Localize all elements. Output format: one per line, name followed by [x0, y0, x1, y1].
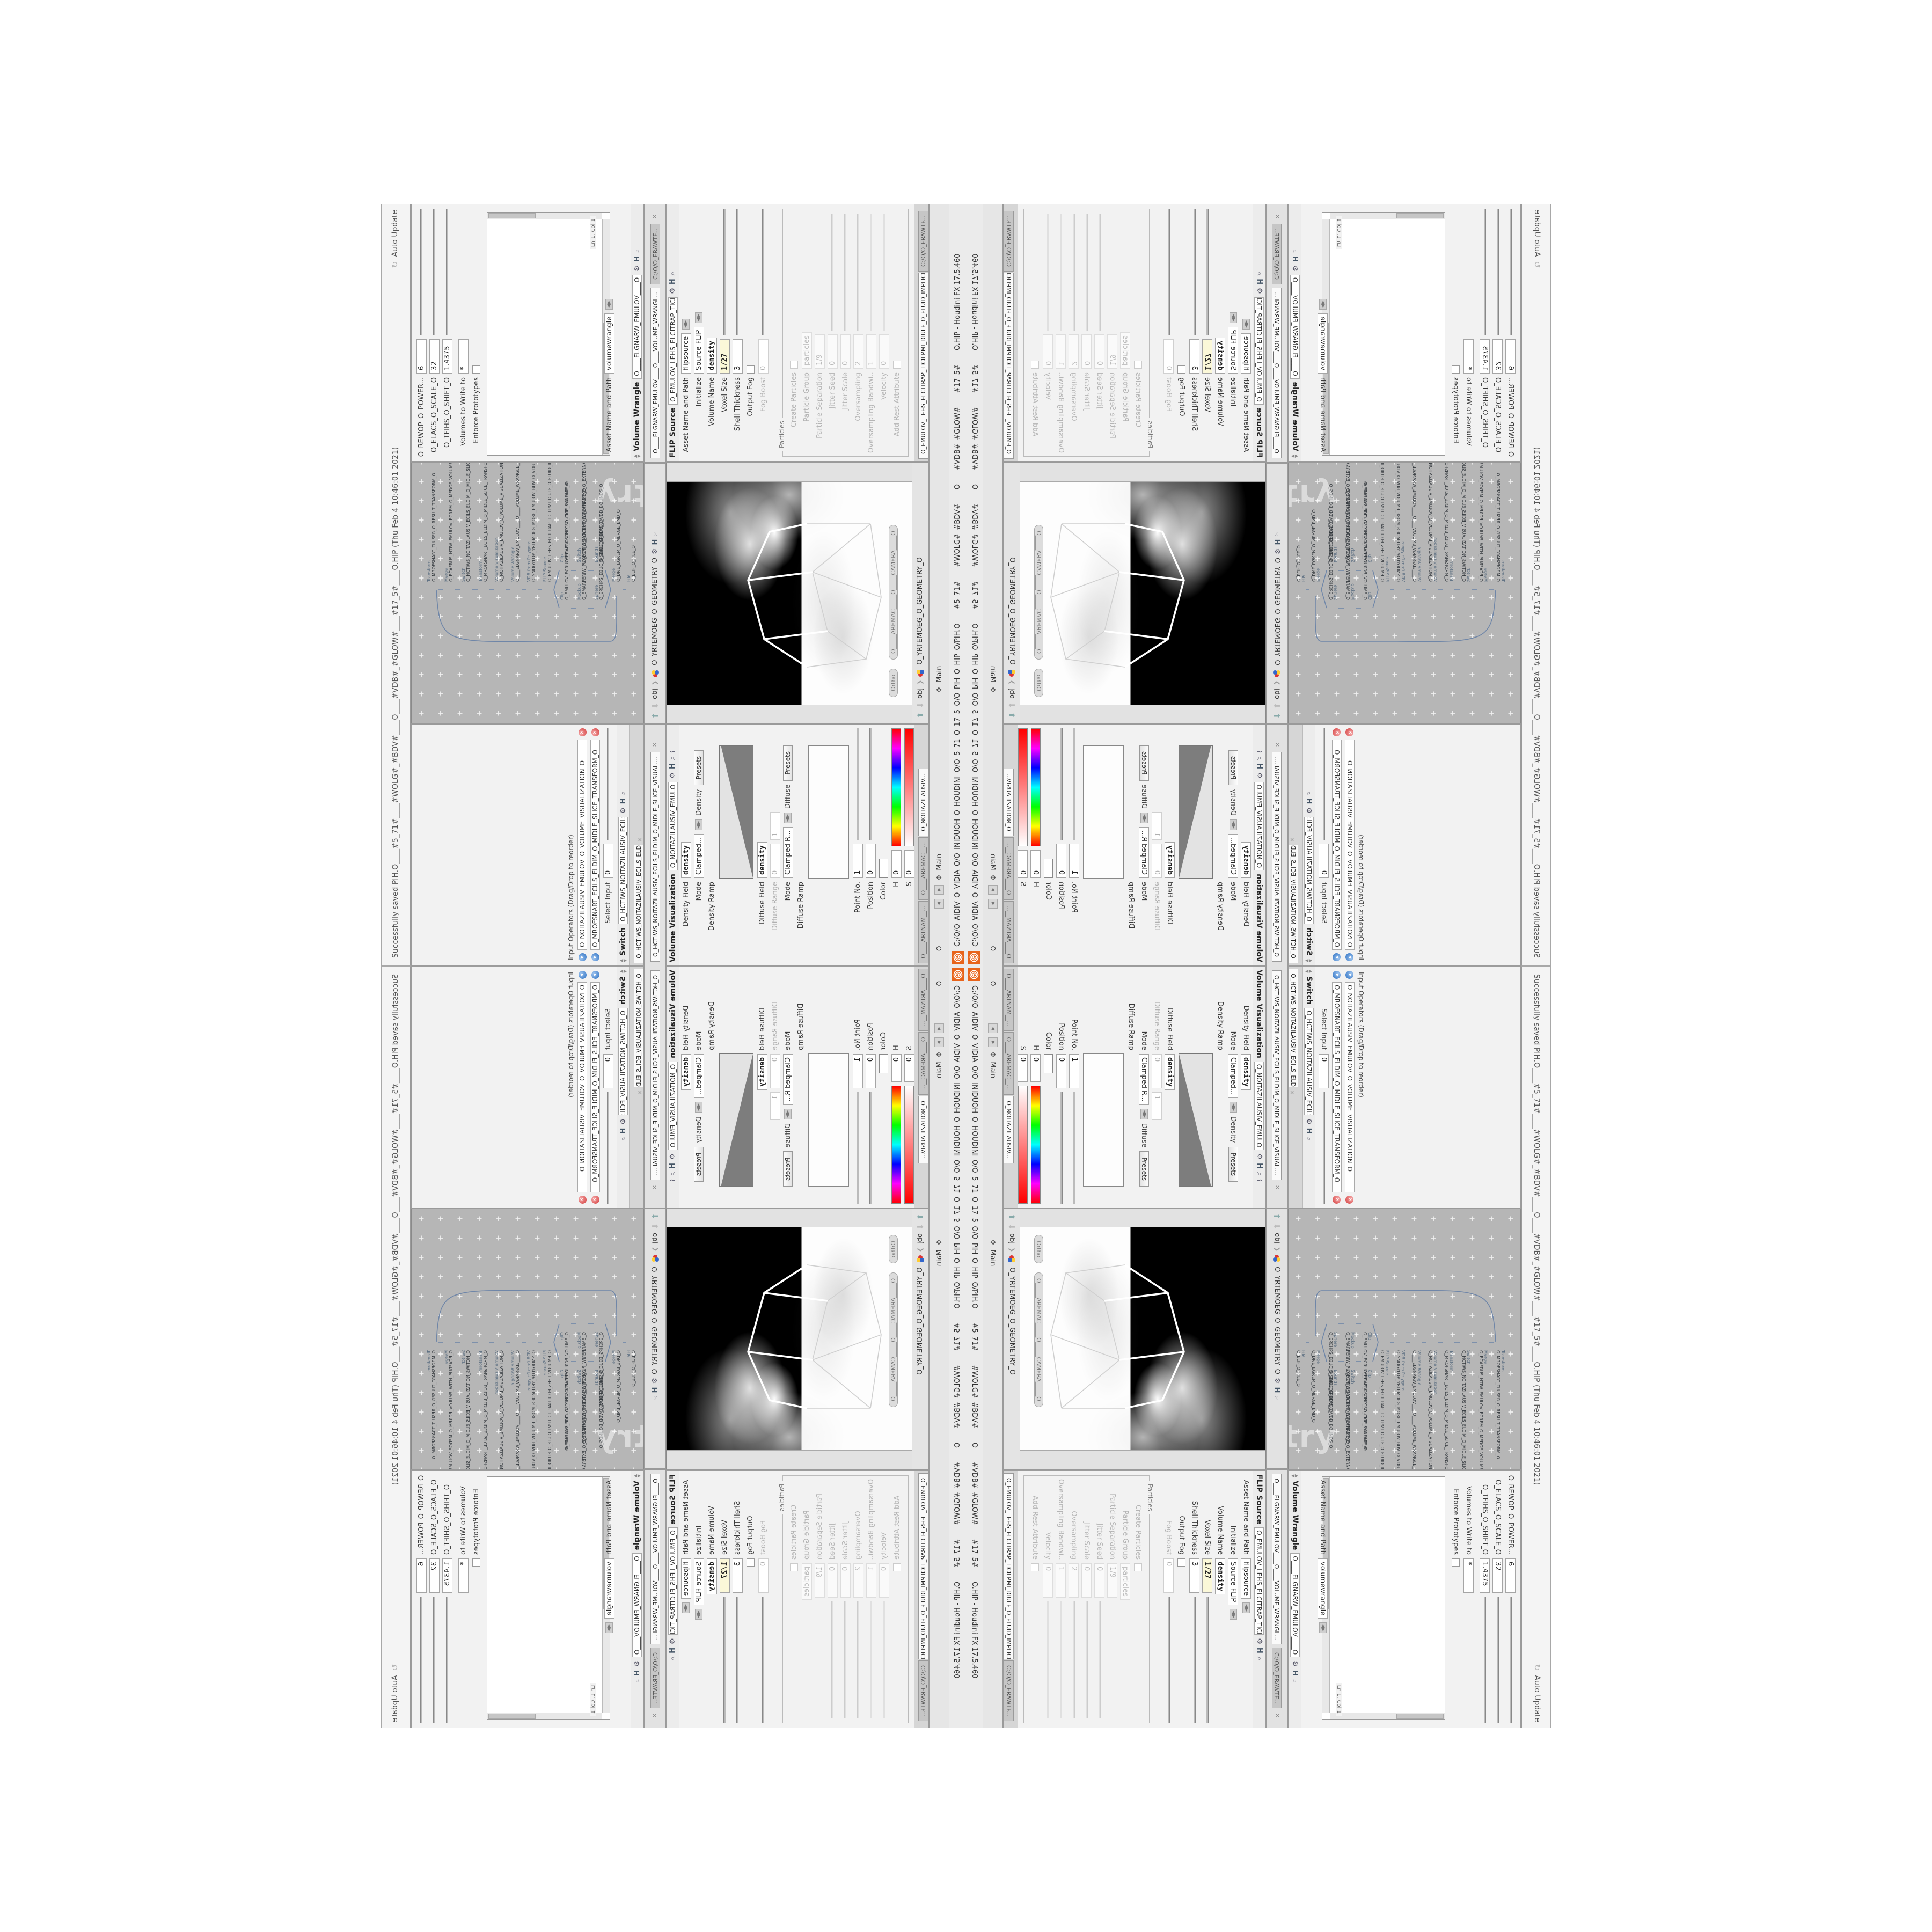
auto-update-dropdown[interactable]: Auto Update [1533, 1675, 1541, 1722]
delete-input-icon[interactable]: ✕ [591, 728, 599, 736]
parameter-slider[interactable] [831, 1601, 833, 1718]
parameter-row[interactable]: Shell Thickness 3 ◀▶ [731, 204, 744, 461]
parameter-row[interactable]: Select Input 0 [1318, 967, 1330, 1208]
search-icon[interactable]: ⌕ [1273, 532, 1281, 536]
parameter-row[interactable]: Diffuse Ramp ◀▶ [1125, 967, 1138, 1208]
parameter-slider[interactable] [1168, 209, 1170, 335]
parameter-slider[interactable] [420, 209, 422, 335]
parameter-row[interactable]: Velocity 0 [1042, 209, 1055, 456]
nav-down-icon[interactable]: ⬇ [650, 1223, 660, 1230]
pane-tab[interactable]: C:/O/O_ERAWTF... [918, 211, 928, 272]
parameter-slider[interactable] [1047, 214, 1049, 331]
parameter-slider[interactable] [869, 1092, 872, 1204]
pane-tab-main[interactable]: Main [989, 854, 997, 870]
desktop-name[interactable]: O [935, 981, 943, 986]
tab-scroll-right-icon[interactable]: ▶ [934, 1037, 944, 1047]
parameter-slider[interactable] [433, 1597, 435, 1723]
pane-tab[interactable]: O____AREMAC__... [918, 1032, 928, 1095]
parameter-row[interactable]: Jitter Scale 0 [1080, 209, 1093, 456]
parameter-row[interactable]: Diffuse Field density ◀▶ [1163, 967, 1176, 1208]
parameter-row[interactable]: Diffuse Field density ◀▶ [756, 967, 769, 1208]
parameter-slider[interactable] [433, 209, 435, 335]
parameter-row[interactable]: O_TFIHS_O_SHIFT_O 1.4375 [1479, 204, 1491, 461]
search-icon[interactable]: ⌕ [1255, 1172, 1263, 1176]
help-icon[interactable]: H [669, 763, 677, 769]
input-operator-row[interactable]: ➤ O_NOITAZILAUSIV_EMULOV_O_VOLUME_VISUAL… [1343, 967, 1356, 1208]
parameter-row[interactable]: Jitter Scale 0 [1080, 1476, 1093, 1723]
parameter-row[interactable]: Diffuse Range 0 1 ◀▶ [1151, 724, 1163, 965]
parameter-row[interactable]: Volume Name density ◀▶ [705, 1471, 718, 1728]
input-operator-row[interactable]: ➤ O_NOITAZILAUSIV_EMULOV_O_VOLUME_VISUAL… [1343, 724, 1356, 965]
diffuse-ramp-widget[interactable] [1083, 1053, 1124, 1204]
parameter-slider[interactable] [1510, 209, 1512, 335]
parameter-slider[interactable] [762, 209, 764, 335]
gear-icon[interactable]: ⚙ [619, 807, 627, 814]
help-icon[interactable]: H [1291, 1670, 1299, 1676]
parameter-row[interactable]: Mode Clamped... ◀▶ Density Presets [692, 967, 705, 1208]
parameter-row[interactable]: Initialize Source FLIP ◀▶ [692, 204, 705, 461]
nav-down-icon[interactable]: ⬇ [1272, 702, 1282, 709]
gear-icon[interactable]: ⚙ [1255, 772, 1263, 779]
combo-arrows-icon[interactable]: ◀▶ [1230, 312, 1237, 323]
combo-arrows-icon[interactable]: ◀▶ [605, 299, 613, 310]
search-icon[interactable]: ⌕ [1255, 1657, 1263, 1660]
nav-up-icon[interactable]: ⬆ [1007, 712, 1017, 719]
parameter-row[interactable]: Shell Thickness 3 ◀▶ [1188, 204, 1201, 461]
parameter-row[interactable]: Mode Clamped... ◀▶ Density Presets [1227, 724, 1240, 965]
combo-arrows-icon[interactable]: ◀▶ [1230, 1609, 1237, 1620]
hsv-row[interactable]: H 0 ◀▶ [890, 967, 903, 1208]
help-icon[interactable]: H [1273, 1387, 1281, 1393]
search-icon[interactable]: ⌕ [619, 1137, 627, 1140]
hsv-gradient-bar[interactable] [1031, 728, 1041, 846]
parameter-slider[interactable] [1073, 1601, 1075, 1718]
parameter-row[interactable]: Voxel Size 1/27 ◀▶ [718, 204, 731, 461]
parameter-slider[interactable] [1086, 214, 1088, 331]
parameter-row[interactable]: Jitter Seed 0 [1093, 1476, 1106, 1723]
info-icon[interactable]: ℹ [1256, 750, 1263, 753]
presets-button[interactable]: Presets [694, 1147, 704, 1182]
parameter-slider[interactable] [1206, 209, 1209, 335]
pane-tab[interactable]: O_NOITAZILAUSIV... [918, 769, 928, 836]
parameter-row[interactable]: Diffuse Ramp ◀▶ [1125, 724, 1138, 965]
color-swatch[interactable] [879, 1054, 888, 1073]
desktop-name[interactable]: O [935, 946, 943, 951]
nav-up-icon[interactable]: ⬆ [916, 1213, 925, 1220]
close-tab-icon[interactable]: ✕ [638, 1088, 643, 1096]
parameter-slider[interactable] [844, 1601, 846, 1718]
pane-node-name-field[interactable]: O____ELGNARW_EMULOV____O [1290, 1553, 1300, 1657]
pane-divider[interactable] [1004, 462, 1521, 463]
parameter-row[interactable]: Point No. 1 [851, 967, 864, 1208]
hsv-row[interactable]: H 0 ◀▶ [1029, 724, 1042, 965]
parameter-row[interactable]: Velocity 0 [877, 209, 890, 456]
breadcrumb-path[interactable]: O_YRTEMOEG_O_GEOMETRY_O [916, 1267, 924, 1375]
hsv-gradient-bar[interactable] [904, 1086, 914, 1204]
parameter-row[interactable]: Oversampling Bandwi... 1 [1055, 1476, 1067, 1723]
parameter-row[interactable]: Mode Clamped R... ◀▶ Diffuse Presets [781, 724, 794, 965]
parameter-row[interactable]: Fog Boost 0 ◀▶ [1162, 1471, 1175, 1728]
nav-down-icon[interactable]: ⬇ [1272, 1223, 1282, 1230]
input-operator-row[interactable]: ➤ O_MROFSNART_ECILS_ELDIM_O_MIDLE_SLICE_… [589, 724, 602, 965]
pane-divider[interactable] [1004, 1207, 1521, 1209]
pane-tab[interactable]: O_EMULOV_LEHS_ELCITRAP_TICILPMI_DIULF_O_… [1004, 273, 1014, 459]
parameter-slider[interactable] [446, 209, 448, 335]
breadcrumb-context[interactable]: obj [651, 1233, 659, 1243]
pane-nav-arrows[interactable]: ▲▼ [1305, 959, 1313, 962]
pane-tab[interactable]: C:/O/O_ERAWTF... [1004, 211, 1014, 272]
parameter-row[interactable]: Jitter Seed 0 [826, 1476, 839, 1723]
hsv-row[interactable]: S 0 ◀▶ [1016, 724, 1029, 965]
pane-tab[interactable]: C:/O/O_ERAWTF... [1004, 1660, 1014, 1721]
scene-viewport[interactable]: Ortho O_____AREMAC_____O_____CAMERA_____… [666, 1209, 928, 1469]
presets-button[interactable]: Presets [694, 750, 704, 786]
breadcrumb-context[interactable]: obj [1273, 689, 1281, 699]
pane-tab[interactable]: O____ELGNARW_EMULOV____O____VOLUME_WRANG… [1272, 1474, 1282, 1644]
pane-tab-main[interactable]: Main [935, 854, 943, 870]
pane-tab[interactable]: O____AREMAC__... [1004, 837, 1014, 900]
parameter-row[interactable]: Oversampling 2 [852, 1476, 865, 1723]
network-editor[interactable]: Transform O_MROFSNART_TLUSER_O_RESULT_TR… [1288, 463, 1521, 723]
input-operator-row[interactable]: ➤ O_MROFSNART_ECILS_ELDIM_O_MIDLE_SLICE_… [1330, 967, 1343, 1208]
close-tab-icon[interactable]: ✕ [652, 741, 658, 749]
asset-name-row[interactable]: Asset Name and Path volumewrangle ◀▶ [603, 204, 616, 461]
pane-node-name-field[interactable]: O_EMULOV_LEHS_ELCITRAP_TICI [1255, 297, 1264, 405]
parameter-row[interactable]: Output Fog ◀▶ [1175, 1471, 1188, 1728]
parameter-row[interactable]: Oversampling Bandwi... 1 [1055, 209, 1067, 456]
parameter-slider[interactable] [607, 728, 609, 840]
pane-divider[interactable] [1004, 723, 1521, 724]
auto-update-dropdown[interactable]: Auto Update [391, 210, 399, 257]
parameter-row[interactable]: Add Rest Attribute [1029, 209, 1042, 456]
checkbox[interactable] [1178, 1558, 1186, 1567]
help-icon[interactable]: H [651, 1387, 659, 1393]
checkbox[interactable] [472, 1558, 480, 1567]
pane-node-name-field[interactable]: O_NOITAZILAUSIV_EMULO [1255, 782, 1264, 871]
refresh-icon[interactable]: ↻ [1532, 1664, 1542, 1671]
parameter-row[interactable]: Oversampling Bandwi... 1 [865, 209, 877, 456]
pane-nav-arrows[interactable]: ▲▼ [619, 970, 627, 973]
pane-nav-arrows[interactable]: ▲▼ [1291, 1474, 1299, 1477]
volume-render-image[interactable]: Ortho O_____AREMAC_____O_____CAMERA_____… [1020, 1227, 1265, 1451]
parameter-row[interactable]: Create Particles [1132, 209, 1145, 456]
help-icon[interactable]: H [1255, 1648, 1263, 1653]
delete-input-icon[interactable]: ✕ [579, 1196, 587, 1204]
reorder-arrow-icon[interactable]: ➤ [579, 953, 587, 961]
asset-name-row[interactable]: Asset Name and Path volumewrangle ◀▶ [1316, 1471, 1329, 1728]
hsv-row[interactable]: H 0 ◀▶ [1029, 967, 1042, 1208]
hsv-gradient-bar[interactable] [891, 728, 901, 846]
parameter-row[interactable]: Density Field density ◀▶ [1240, 967, 1253, 1208]
combo-arrows-icon[interactable]: ◀▶ [784, 1109, 792, 1119]
help-icon[interactable]: H [1255, 1163, 1263, 1169]
breadcrumb-path[interactable]: O_YRTEMOEG_O_GEOMETRY_O [1273, 558, 1281, 665]
parameter-row[interactable]: Color [877, 967, 890, 1208]
pane-nav-arrows[interactable]: ▲▼ [633, 455, 641, 458]
tab-scroll-left-icon[interactable]: ◀ [934, 899, 944, 909]
tab-scroll-left-icon[interactable]: ◀ [934, 1023, 944, 1033]
parameter-slider[interactable] [1484, 1597, 1486, 1723]
parameter-row[interactable]: Create Particles [787, 1476, 800, 1723]
combo-arrows-icon[interactable]: ◀▶ [695, 1609, 702, 1620]
parameter-row[interactable]: Mode Clamped... ◀▶ Density Presets [692, 724, 705, 965]
close-tab-icon[interactable]: ✕ [1274, 213, 1280, 220]
combo-arrows-icon[interactable]: ◀▶ [682, 319, 690, 330]
breadcrumb-context[interactable]: obj [1008, 1233, 1016, 1244]
pane-tab[interactable]: O_NOITAZILAUSIV... [1004, 1096, 1014, 1163]
search-icon[interactable]: ⌕ [1305, 791, 1313, 795]
pane-nav-arrows[interactable]: ▲▼ [1291, 455, 1299, 458]
parameter-row[interactable]: Particle Separation 1/9 [813, 1476, 826, 1723]
pane-tab[interactable]: C:/O/O_ERAWTF... [1272, 224, 1282, 284]
input-operator-row[interactable]: ➤ O_NOITAZILAUSIV_EMULOV_O_VOLUME_VISUAL… [576, 724, 589, 965]
projection-pill[interactable]: Ortho [889, 1235, 898, 1263]
projection-pill[interactable]: Ortho [1034, 1235, 1043, 1263]
pane-divider[interactable] [1004, 1469, 1521, 1470]
parameter-slider[interactable] [723, 209, 726, 335]
parameter-row[interactable]: O_ELACS_O_SCALE_O 32 [428, 204, 441, 461]
pane-tab[interactable]: C:/O/O_ERAWTF... [918, 1660, 928, 1721]
parameter-slider[interactable] [1086, 1601, 1088, 1718]
parameter-row[interactable]: Color [1042, 967, 1055, 1208]
parameter-row[interactable]: Volumes to Write to * [457, 1471, 470, 1728]
gear-icon[interactable]: ⚙ [619, 1118, 627, 1125]
search-icon[interactable]: ⌕ [651, 1396, 659, 1400]
close-tab-icon[interactable]: ✕ [638, 836, 643, 843]
parameter-row[interactable]: O_REWOP_O_POWER... 6 [415, 204, 428, 461]
parameter-row[interactable]: Density Ramp ◀▶ [1214, 724, 1227, 965]
diffuse-ramp-widget[interactable] [808, 728, 849, 879]
combo-arrows-icon[interactable]: ◀▶ [695, 819, 702, 830]
nav-up-icon[interactable]: ⬆ [1007, 1213, 1017, 1220]
delete-input-icon[interactable]: ✕ [1333, 728, 1341, 736]
pane-tab[interactable]: O_EMULOV_LEHS_ELCITRAP_TICILPMI_DIULF_O_… [918, 273, 928, 459]
parameter-slider[interactable] [857, 728, 859, 840]
help-icon[interactable]: H [1273, 539, 1281, 545]
nav-up-icon[interactable]: ⬆ [1272, 712, 1282, 719]
pane-tab[interactable]: O_NOITAZILAUSIV... [918, 1096, 928, 1163]
parameter-slider[interactable] [1047, 1601, 1049, 1718]
pane-tab[interactable]: O_HCTIWS_NOITAZILAUSIV_ECILS_ELDIM_O_MID… [634, 969, 643, 1087]
code-vertical-scrollbar[interactable] [1330, 213, 1445, 219]
checkbox[interactable] [1135, 1563, 1143, 1571]
breadcrumb-path[interactable]: O_YRTEMOEG_O_GEOMETRY_O [1008, 1267, 1016, 1375]
parameter-row[interactable]: Density Field density ◀▶ [679, 724, 692, 965]
parameter-row[interactable]: Particle Separation 1/9 [813, 209, 826, 456]
parameter-slider[interactable] [762, 1597, 764, 1723]
reorder-arrow-icon[interactable]: ➤ [1346, 971, 1354, 979]
parameter-slider[interactable] [1073, 214, 1075, 331]
parameter-row[interactable]: Jitter Scale 0 [839, 209, 852, 456]
pane-node-name-field[interactable]: O_HCTIWS_NOITAZILAUSIV_ECILS_EL [1304, 1008, 1314, 1115]
parameter-row[interactable]: Volume Name density ◀▶ [705, 204, 718, 461]
presets-button[interactable]: Presets [1139, 745, 1149, 781]
info-icon[interactable]: ℹ [669, 1179, 677, 1182]
search-icon[interactable]: ⌕ [1305, 1137, 1313, 1140]
parameter-row[interactable]: Point No. 1 [1068, 724, 1081, 965]
parameter-row[interactable]: Initialize Source FLIP ◀▶ [692, 1471, 705, 1728]
info-icon[interactable]: ℹ [1256, 1179, 1263, 1182]
density-ramp-widget[interactable] [1179, 728, 1213, 879]
gear-icon[interactable]: ⚙ [1255, 288, 1263, 294]
pane-tab-main[interactable]: Main [989, 1249, 997, 1266]
scene-viewport[interactable]: Ortho O_____AREMAC_____O_____CAMERA_____… [666, 463, 928, 723]
parameter-row[interactable]: Diffuse Range 0 1 ◀▶ [769, 967, 781, 1208]
close-tab-icon[interactable]: ✕ [1274, 741, 1280, 749]
asset-name-row[interactable]: Asset Name and Path flipsource ◀▶ [679, 1471, 692, 1728]
parameter-row[interactable]: Shell Thickness 3 ◀▶ [1188, 1471, 1201, 1728]
combo-arrows-icon[interactable]: ◀▶ [1319, 1622, 1327, 1633]
parameter-row[interactable]: Jitter Seed 0 [1093, 209, 1106, 456]
parameter-row[interactable]: O_TFIHS_O_SHIFT_O 1.4375 [1479, 1471, 1491, 1728]
parameter-row[interactable]: Density Field density ◀▶ [679, 967, 692, 1208]
gear-icon[interactable]: ⚙ [669, 288, 677, 294]
camera-pill[interactable]: O_____AREMAC_____O_____CAMERA_____O [889, 525, 898, 660]
pane-tab[interactable]: O____ARTNAM__... [918, 969, 928, 1031]
parameter-row[interactable]: Initialize Source FLIP ◀▶ [1227, 1471, 1240, 1728]
parameter-slider[interactable] [857, 1092, 859, 1204]
tab-scroll-left-icon[interactable]: ◀ [988, 1023, 998, 1033]
checkbox[interactable] [1135, 361, 1143, 369]
parameter-row[interactable]: Diffuse Field density ◀▶ [756, 724, 769, 965]
reorder-arrow-icon[interactable]: ➤ [579, 971, 587, 979]
nav-down-icon[interactable]: ⬇ [1007, 702, 1017, 709]
pane-tab[interactable]: O____AREMAC__... [918, 837, 928, 900]
help-icon[interactable]: H [1255, 763, 1263, 769]
help-icon[interactable]: H [669, 1648, 677, 1653]
close-tab-icon[interactable]: ✕ [1289, 1088, 1294, 1096]
search-icon[interactable]: ⌕ [633, 1679, 641, 1683]
parameter-row[interactable]: Jitter Scale 0 [839, 1476, 852, 1723]
reorder-arrow-icon[interactable]: ➤ [1333, 953, 1341, 961]
pane-node-name-field[interactable]: O____ELGNARW_EMULOV____O [632, 1553, 642, 1657]
parameter-slider[interactable] [883, 214, 885, 331]
refresh-icon[interactable]: ↻ [390, 261, 400, 268]
breadcrumb-path[interactable]: O_YRTEMOEG_O_GEOMETRY_O [916, 557, 924, 665]
parameter-slider[interactable] [1060, 1092, 1063, 1204]
delete-input-icon[interactable]: ✕ [591, 1196, 599, 1204]
parameter-row[interactable]: Mode Clamped R... ◀▶ Diffuse Presets [1138, 967, 1151, 1208]
help-icon[interactable]: H [669, 279, 677, 284]
combo-arrows-icon[interactable]: ◀▶ [1230, 819, 1237, 830]
checkbox[interactable] [1031, 361, 1040, 369]
refresh-icon[interactable]: ↻ [1532, 261, 1542, 268]
diffuse-ramp-widget[interactable] [808, 1053, 849, 1204]
tab-scroll-right-icon[interactable]: ▶ [988, 1037, 998, 1047]
parameter-slider[interactable] [723, 1597, 726, 1723]
help-icon[interactable]: H [619, 1128, 627, 1134]
pane-tab[interactable]: C:/O/O_ERAWTF... [650, 1648, 660, 1708]
nav-up-icon[interactable]: ⬆ [1272, 1213, 1282, 1220]
help-icon[interactable]: H [619, 799, 627, 804]
checkbox[interactable] [790, 1563, 798, 1571]
auto-update-dropdown[interactable]: Auto Update [391, 1675, 399, 1722]
pane-tab[interactable]: O_HCTIWS_NOITAZILAUSIV_ECILS_ELDIM_O_MID… [1289, 969, 1298, 1087]
hsv-gradient-bar[interactable] [891, 1086, 901, 1204]
code-vertical-scrollbar[interactable] [487, 1713, 602, 1719]
checkbox[interactable] [747, 365, 755, 374]
pane-tab[interactable]: O____ARTNAM__... [1004, 969, 1014, 1031]
pane-node-name-field[interactable]: O_NOITAZILAUSIV_EMULO [668, 782, 678, 871]
camera-pill[interactable]: O_____AREMAC_____O_____CAMERA_____O [1034, 525, 1043, 660]
pane-node-name-field[interactable]: O____ELGNARW_EMULOV____O [632, 275, 642, 379]
asset-name-row[interactable]: Asset Name and Path flipsource ◀▶ [1240, 204, 1253, 461]
gear-icon[interactable]: ⚙ [669, 1153, 677, 1160]
search-icon[interactable]: ⌕ [1291, 1679, 1299, 1683]
presets-button[interactable]: Presets [1228, 750, 1238, 786]
parameter-row[interactable]: Point No. 1 [1068, 967, 1081, 1208]
parameter-slider[interactable] [844, 214, 846, 331]
parameter-row[interactable]: Density Ramp ◀▶ [705, 724, 718, 965]
breadcrumb-path[interactable]: O_YRTEMOEG_O_GEOMETRY_O [651, 1267, 659, 1374]
gear-icon[interactable]: ⚙ [1305, 1118, 1313, 1125]
parameter-slider[interactable] [1073, 728, 1075, 840]
hsv-gradient-bar[interactable] [1031, 1086, 1041, 1204]
pane-tab[interactable]: C:/O/O_ERAWTF... [1272, 1648, 1282, 1708]
parameter-row[interactable]: O_REWOP_O_POWER... 6 [1504, 204, 1517, 461]
checkbox[interactable] [893, 1563, 901, 1571]
help-icon[interactable]: H [1255, 279, 1263, 284]
network-editor[interactable]: Transform O_MROFSNART_TLUSER_O_RESULT_TR… [1288, 1209, 1521, 1469]
combo-arrows-icon[interactable]: ◀▶ [605, 1622, 613, 1633]
parameter-row[interactable]: Output Fog ◀▶ [744, 1471, 757, 1728]
parameter-row[interactable]: Fog Boost 0 ◀▶ [1162, 204, 1175, 461]
pane-nav-arrows[interactable]: ▲▼ [1305, 970, 1313, 973]
help-icon[interactable]: H [1305, 1128, 1313, 1134]
tab-scroll-left-icon[interactable]: ◀ [988, 899, 998, 909]
pane-node-name-field[interactable]: O_EMULOV_LEHS_ELCITRAP_TICI [668, 297, 678, 405]
diffuse-ramp-widget[interactable] [1083, 728, 1124, 879]
parameter-row[interactable]: Particle Separation 1/9 [1106, 209, 1119, 456]
color-swatch[interactable] [1044, 859, 1053, 878]
tab-scroll-right-icon[interactable]: ▶ [988, 885, 998, 895]
volume-render-image[interactable]: Ortho O_____AREMAC_____O_____CAMERA_____… [1020, 481, 1265, 705]
pane-tab[interactable]: O_HCTIWS_NOITAZILAUSIV_ECILS_ELDIM_O_MID… [650, 970, 660, 1180]
close-tab-icon[interactable]: ✕ [1274, 1711, 1280, 1719]
gear-icon[interactable]: ⚙ [1273, 548, 1281, 554]
parameter-row[interactable]: Volume Name density ◀▶ [1214, 204, 1227, 461]
parameter-slider[interactable] [1099, 214, 1101, 331]
parameter-row[interactable]: Voxel Size 1/27 ◀▶ [718, 1471, 731, 1728]
close-tab-icon[interactable]: ✕ [1274, 1183, 1280, 1191]
parameter-row[interactable]: Oversampling 2 [1067, 209, 1080, 456]
reorder-arrow-icon[interactable]: ➤ [591, 971, 599, 979]
presets-button[interactable]: Presets [783, 745, 793, 781]
asset-name-row[interactable]: Asset Name and Path volumewrangle ◀▶ [603, 1471, 616, 1728]
parameter-row[interactable]: Position 0 [864, 724, 877, 965]
combo-arrows-icon[interactable]: ◀▶ [1140, 1109, 1148, 1119]
pane-tab[interactable]: O_HCTIWS_NOITAZILAUSIV_ECILS_ELDIM_O_MID… [1272, 970, 1282, 1180]
parameter-slider[interactable] [883, 1601, 885, 1718]
pane-tab[interactable]: O_HCTIWS_NOITAZILAUSIV_ECILS_ELDIM_O_MID… [1272, 752, 1282, 962]
pane-node-name-field[interactable]: O_EMULOV_LEHS_ELCITRAP_TICI [668, 1527, 678, 1635]
pane-tab[interactable]: O____ELGNARW_EMULOV____O____VOLUME_WRANG… [650, 1474, 660, 1644]
gear-icon[interactable]: ⚙ [633, 1660, 641, 1667]
parameter-row[interactable]: Position 0 [1055, 724, 1068, 965]
hsv-gradient-bar[interactable] [1018, 728, 1028, 846]
parameter-slider[interactable] [1194, 1597, 1196, 1723]
gear-icon[interactable]: ⚙ [1273, 1378, 1281, 1384]
parameter-slider[interactable] [1073, 1092, 1075, 1204]
parameter-slider[interactable] [1323, 1092, 1325, 1204]
density-ramp-widget[interactable] [719, 1053, 753, 1204]
nav-up-icon[interactable]: ⬆ [916, 712, 925, 719]
parameter-row[interactable]: Particle Group particles [1119, 209, 1132, 456]
pane-node-name-field[interactable]: O_HCTIWS_NOITAZILAUSIV_ECILS_EL [1304, 817, 1314, 924]
checkbox[interactable] [893, 361, 901, 369]
tab-scroll-right-icon[interactable]: ▶ [934, 885, 944, 895]
pane-node-name-field[interactable]: O_NOITAZILAUSIV_EMULO [1255, 1062, 1264, 1151]
